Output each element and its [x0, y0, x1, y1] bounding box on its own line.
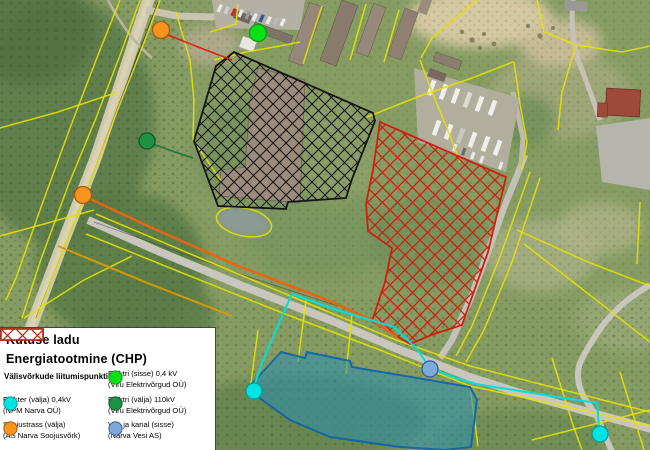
orange-circle-icon	[3, 421, 18, 436]
concrete-pad-east	[596, 118, 650, 190]
marker-heating-north	[153, 22, 170, 39]
dark-green-circle-icon	[108, 396, 123, 411]
legend-point-water: Vee ja kanal (sisse) (Narva Vesi AS)	[108, 419, 214, 441]
green-circle-icon	[108, 370, 123, 385]
legend-point-electric-out: Elekter (välja) 0,4kV (NPM Narva OÜ)	[3, 394, 109, 416]
cyan-circle-icon	[3, 396, 18, 411]
red-hatch-swatch	[0, 328, 44, 341]
red-roof-building	[605, 88, 640, 117]
legend-point-electric-in: Elektri (sisse) 0,4 kV (Viru Elektrivõrg…	[108, 368, 214, 390]
marker-electric-out-southeast	[592, 426, 608, 442]
blue-circle-icon	[108, 421, 123, 436]
marker-water-south	[422, 361, 438, 377]
legend-point-electric-110kv: Elektri (välja) 110kV (Viru Elektrivõrgu…	[108, 394, 214, 416]
building-grey-ne	[564, 0, 588, 12]
legend-area-chp: Energiatootmine (CHP)	[6, 352, 215, 366]
marker-electric-110kv-west	[139, 133, 155, 149]
marker-heating-west	[75, 187, 92, 204]
legend-point-heating: Soojustrass (välja) (AS Narva Soojusvõrk…	[3, 419, 109, 441]
map-legend: Kütuse ladu Energiatootmine (CHP) Välisv…	[0, 327, 216, 450]
site-map-figure: Kütuse ladu Energiatootmine (CHP) Välisv…	[0, 0, 650, 450]
red-roof-building-wing	[597, 103, 608, 118]
marker-electric-out-south	[246, 383, 262, 399]
marker-electric-in-north	[250, 25, 267, 42]
legend-area-label: Energiatootmine (CHP)	[6, 352, 147, 366]
